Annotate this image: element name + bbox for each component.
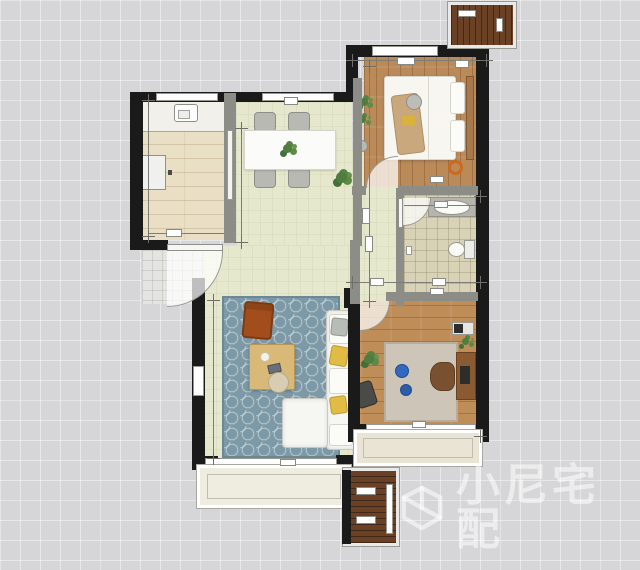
dining-chair bbox=[254, 112, 276, 132]
desk-plant bbox=[462, 338, 469, 345]
partition-bedroom-left bbox=[353, 78, 362, 160]
table-plant bbox=[283, 144, 292, 153]
kitchen-sink-basin bbox=[178, 110, 190, 119]
dining-chair bbox=[254, 168, 276, 188]
dimension-chip bbox=[430, 288, 444, 295]
living-side-window bbox=[193, 366, 204, 396]
dimension-chip bbox=[365, 236, 373, 252]
dimension-tick bbox=[207, 294, 220, 307]
dimension-chip bbox=[434, 201, 448, 208]
dimension-chip bbox=[166, 229, 182, 237]
dimension-chip bbox=[280, 459, 296, 466]
yellow-pillow bbox=[328, 345, 349, 368]
sofa-chaise bbox=[282, 398, 328, 448]
bed-duvet-fold bbox=[428, 77, 429, 159]
wall-left bbox=[130, 92, 143, 250]
toilet-paper-holder bbox=[406, 246, 412, 255]
dimension-tick bbox=[480, 54, 493, 67]
blue-pouf bbox=[400, 384, 412, 396]
dimension-chip bbox=[362, 208, 370, 224]
blue-pouf bbox=[395, 364, 409, 378]
dimension-tick bbox=[235, 236, 248, 249]
watermark: 小尼宅配 bbox=[398, 464, 640, 552]
dimension-chip bbox=[455, 60, 469, 68]
dimension-tick bbox=[235, 122, 248, 135]
living-balcony-door bbox=[205, 458, 337, 465]
dimension-tick bbox=[363, 295, 376, 308]
dimension-chip bbox=[356, 487, 376, 495]
partition-bedroom-bottom bbox=[352, 186, 366, 195]
dimension-tick bbox=[142, 94, 155, 107]
dimension-chip bbox=[284, 97, 298, 105]
dimension-line bbox=[369, 66, 370, 302]
bed-pillow bbox=[450, 120, 465, 152]
dimension-line bbox=[148, 104, 149, 238]
refrigerator-handle bbox=[168, 170, 172, 175]
coffee-table-dish bbox=[260, 352, 270, 362]
living-balcony bbox=[197, 465, 351, 508]
dimension-chip bbox=[370, 278, 384, 286]
gray-pillow bbox=[330, 317, 349, 337]
dining-chair bbox=[288, 168, 310, 188]
wall-bedroom2-left bbox=[348, 292, 360, 442]
dimension-chip bbox=[397, 57, 415, 65]
shelf-boxes bbox=[454, 324, 463, 333]
bedroom2-plant bbox=[364, 354, 374, 364]
dimension-tick bbox=[207, 452, 220, 465]
kitchen-sliding-door bbox=[227, 130, 233, 200]
dimension-chip bbox=[412, 421, 426, 428]
bed-pillow bbox=[450, 82, 465, 114]
dimension-chip bbox=[458, 10, 476, 17]
dining-chair bbox=[288, 112, 310, 132]
partition-bath-top bbox=[396, 186, 478, 195]
dimension-tick bbox=[474, 276, 487, 289]
dimension-line bbox=[148, 233, 224, 234]
ac-platform-top bbox=[448, 2, 516, 48]
yellow-pillow bbox=[329, 395, 348, 415]
dimension-chip bbox=[496, 18, 503, 32]
bed-accent-pillow bbox=[402, 116, 415, 126]
dimension-tick bbox=[363, 60, 376, 73]
cube-logo-icon bbox=[398, 483, 446, 533]
dimension-chip bbox=[356, 516, 376, 524]
dimension-tick bbox=[346, 276, 359, 289]
entry-door-leaf bbox=[167, 244, 223, 251]
wall-right bbox=[476, 45, 489, 442]
ac-platform-window bbox=[386, 484, 393, 534]
desk-chair bbox=[430, 362, 455, 391]
dining-window bbox=[262, 93, 334, 101]
toilet-tank bbox=[464, 240, 475, 259]
partition-hall-living bbox=[350, 240, 360, 304]
bedroom-window bbox=[372, 46, 438, 56]
dimension-line bbox=[213, 300, 214, 458]
ac-platform-wall bbox=[342, 470, 351, 544]
dimension-tick bbox=[474, 430, 487, 443]
partition-hall-left bbox=[353, 158, 362, 246]
ceiling-fan bbox=[406, 94, 422, 110]
bay-inner-line bbox=[363, 438, 473, 458]
balcony-inner-line bbox=[207, 474, 341, 499]
dimension-chip bbox=[430, 176, 444, 183]
toilet-bowl bbox=[448, 242, 465, 257]
dimension-line bbox=[241, 128, 242, 242]
dimension-chip bbox=[432, 278, 446, 286]
dimension-tick bbox=[142, 230, 155, 243]
dimension-tick bbox=[346, 54, 359, 67]
floor-plant bbox=[336, 172, 347, 183]
decor-ring bbox=[448, 160, 463, 175]
dimension-tick bbox=[474, 190, 487, 203]
round-ottoman bbox=[268, 372, 289, 393]
orange-armchair bbox=[241, 301, 274, 340]
watermark-text: 小尼宅配 bbox=[456, 464, 640, 552]
bed-headboard bbox=[466, 76, 474, 160]
desk-monitor bbox=[460, 366, 470, 384]
kitchen-window bbox=[156, 93, 218, 101]
floor-plan-canvas: 小尼宅配 bbox=[0, 0, 640, 570]
refrigerator bbox=[142, 155, 166, 190]
